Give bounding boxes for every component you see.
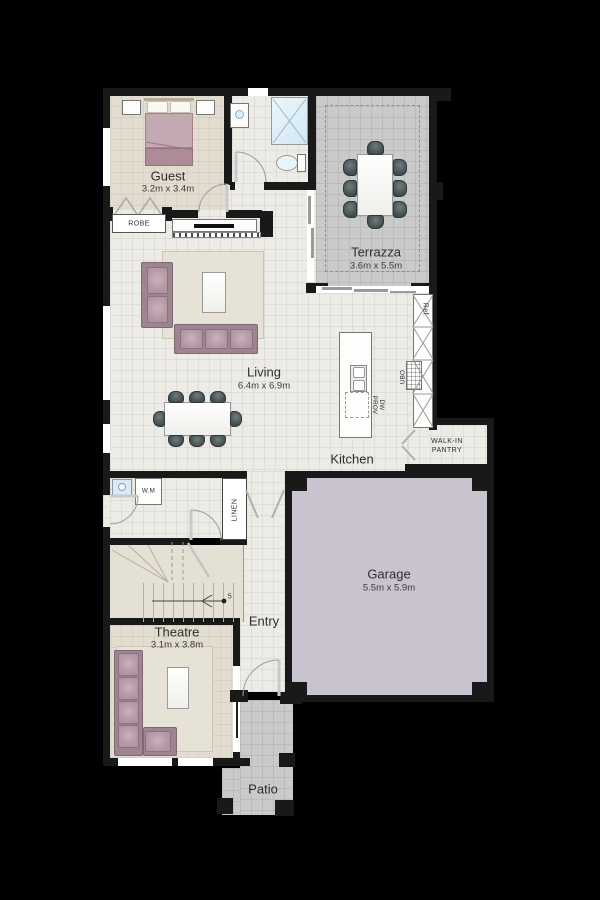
bed-pillow	[147, 101, 168, 113]
coffee-table	[202, 272, 226, 313]
toilet-cistern	[297, 154, 306, 172]
patio-pillar	[275, 800, 294, 816]
living-dims: 6.4m x 6.9m	[238, 381, 290, 392]
vanity-basin	[235, 110, 244, 119]
slider-panel	[354, 289, 388, 292]
sink-bowl	[353, 367, 365, 378]
stairs-entry-divider	[243, 545, 244, 622]
slider-panel	[308, 196, 311, 224]
feature-wall	[172, 232, 261, 238]
slider-panel	[322, 287, 352, 290]
wall-top	[103, 88, 436, 96]
patio-label: Patio	[248, 782, 278, 797]
sofa-cushion	[230, 329, 253, 349]
sofa-cushion	[205, 329, 228, 349]
wall-bath-bottom	[264, 182, 316, 190]
dining-chair	[153, 411, 165, 427]
terrazza-label: Terrazza	[351, 245, 401, 260]
outdoor-chair	[367, 215, 384, 229]
patio-pillar	[217, 798, 233, 814]
dishwasher-provision	[345, 392, 369, 418]
wall-garage-bottom	[285, 695, 494, 702]
wall-right-step	[429, 88, 451, 101]
guest-label: Guest	[151, 169, 186, 184]
laundry-tub-bowl	[118, 483, 126, 491]
outdoor-chair	[393, 201, 407, 218]
dining-table	[164, 402, 231, 436]
bed-spread	[145, 113, 193, 148]
wall-garage-right	[487, 418, 494, 702]
kitchen-label: Kitchen	[330, 452, 373, 467]
wall-pantry-bottom	[405, 464, 494, 478]
outdoor-chair	[343, 201, 357, 218]
dishwasher-label: DW PROV	[371, 396, 385, 415]
terrazza-dims: 3.6m x 5.5m	[350, 261, 402, 272]
floor-plan: Guest 3.2m x 3.4m Terrazza 3.6m x 5.5m L…	[0, 0, 600, 900]
wall-bath-terrazza	[308, 88, 316, 190]
garage-post	[292, 478, 307, 491]
dishwasher-label-line2: PROV	[371, 396, 378, 415]
wall-entry-stub-l	[230, 690, 248, 702]
window-guest-left	[103, 128, 110, 186]
entry-label: Entry	[249, 614, 279, 629]
linen-label: LINEN	[231, 499, 238, 522]
wall-pantry-top	[429, 418, 487, 425]
fridge-label: Ref.	[422, 303, 429, 317]
nightstand	[196, 100, 215, 115]
doorway-laundry-ext	[103, 495, 110, 527]
robe-label: ROBE	[128, 221, 149, 228]
wall-living-bottom	[103, 471, 247, 478]
theatre-dims: 3.1m x 3.8m	[151, 640, 203, 651]
theatre-label: Theatre	[155, 625, 200, 640]
cooktop	[406, 361, 422, 390]
dining-chair	[230, 411, 242, 427]
wall-garage-left	[285, 471, 292, 702]
slider-panel	[390, 291, 416, 294]
outdoor-chair	[343, 159, 357, 176]
dining-chair	[168, 391, 184, 403]
outdoor-table	[357, 154, 393, 216]
bed-pillow	[170, 101, 191, 113]
pantry-label-line2: PANTRY	[431, 446, 463, 455]
wall-right-pier	[429, 182, 443, 200]
shower	[271, 97, 308, 145]
window-theatre-2	[178, 758, 213, 766]
wall-laundry-bottom-l	[103, 538, 190, 545]
sofa-cushion	[118, 701, 139, 724]
oven-label: UBO	[400, 370, 407, 384]
patio-pillar	[279, 753, 295, 767]
window-living-left-1	[103, 306, 110, 400]
sofa-cushion	[118, 677, 139, 700]
dining-chair	[210, 391, 226, 403]
outdoor-chair	[343, 180, 357, 197]
theatre-table	[167, 667, 189, 709]
window-bath-top	[248, 88, 268, 96]
sofa-cushion	[118, 653, 139, 676]
sofa-cushion	[145, 731, 171, 752]
dining-chair	[189, 391, 205, 403]
nightstand	[122, 100, 141, 115]
guest-dims: 3.2m x 3.4m	[142, 184, 194, 195]
sofa-cushion	[147, 296, 168, 323]
dining-chair	[189, 435, 205, 447]
outdoor-chair	[367, 141, 384, 155]
wall-guest-bottom-r	[226, 210, 262, 218]
pantry-label: WALK-IN PANTRY	[431, 437, 463, 455]
stair-riser-marker: 5	[228, 594, 232, 601]
wall-post	[260, 211, 273, 237]
outdoor-chair	[393, 180, 407, 197]
dining-chair	[210, 435, 226, 447]
garage-post	[472, 478, 487, 491]
garage-post	[292, 682, 307, 695]
window-theatre-1	[118, 758, 172, 766]
wall-bath-bottom-stub	[230, 182, 235, 190]
toilet-bowl	[276, 155, 298, 171]
pantry-label-line1: WALK-IN	[431, 437, 463, 446]
dining-chair	[168, 435, 184, 447]
sink-bowl	[353, 380, 365, 391]
sofa-cushion	[118, 725, 139, 748]
garage-dims: 5.5m x 5.9m	[363, 583, 415, 594]
garage-label: Garage	[367, 567, 410, 582]
slider-panel	[311, 228, 314, 258]
outdoor-chair	[393, 159, 407, 176]
sofa-cushion	[147, 267, 168, 294]
garage-post	[472, 682, 487, 695]
tv-screen	[194, 224, 234, 228]
dishwasher-label-line1: DW	[378, 396, 385, 415]
bed-foot	[145, 148, 193, 166]
stair-treads	[143, 583, 243, 622]
sofa-cushion	[180, 329, 203, 349]
washing-machine-label: W.M	[142, 488, 155, 495]
window-living-left-2	[103, 424, 110, 453]
living-label: Living	[247, 365, 281, 380]
